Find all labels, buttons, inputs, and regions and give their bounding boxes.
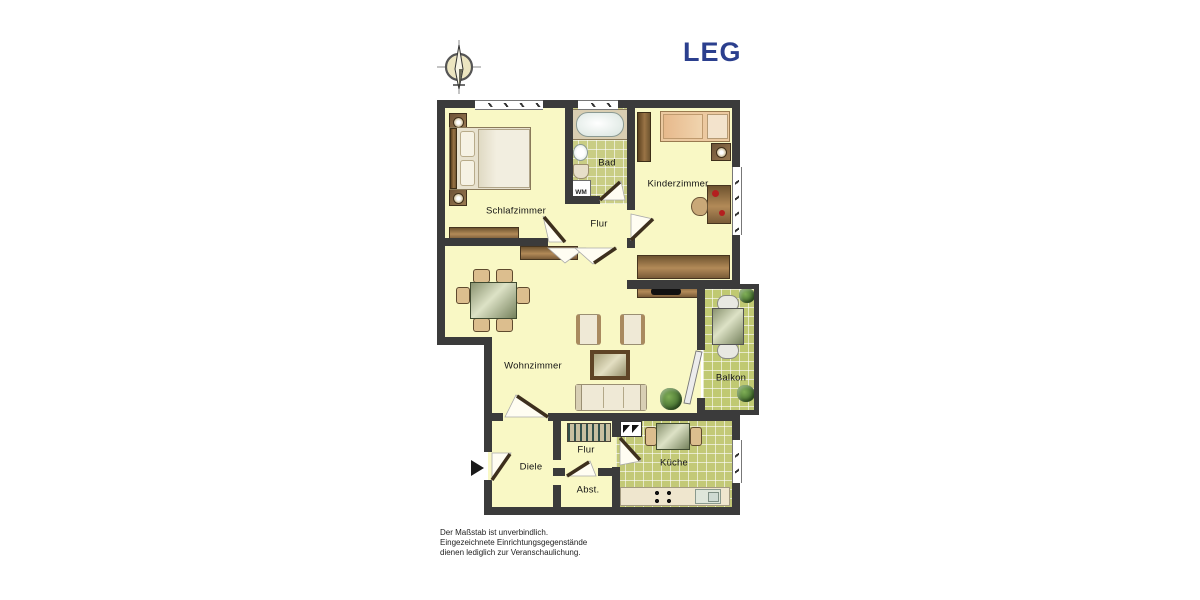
wall (553, 485, 561, 507)
duvet (478, 129, 530, 188)
bathroom-sink (573, 144, 588, 161)
bed-headboard (450, 128, 457, 189)
wall (437, 100, 445, 345)
wall (437, 238, 548, 246)
wall (565, 108, 573, 204)
lamp-icon (453, 193, 464, 204)
floorplan-page: LEG WM (0, 0, 1200, 600)
vent-symbol (620, 421, 642, 437)
dining-table (470, 282, 517, 319)
wall (612, 421, 620, 437)
room-label-bad: Bad (598, 158, 616, 169)
coffee-table (590, 350, 630, 380)
balcony-wall (754, 284, 759, 415)
wall (484, 507, 740, 515)
plant (660, 388, 682, 410)
dining-chair (473, 318, 490, 332)
wall (627, 108, 635, 210)
window (578, 100, 618, 110)
wall (553, 468, 565, 476)
plant (739, 288, 755, 303)
dining-chair (496, 269, 513, 283)
toilet (573, 164, 589, 179)
window (732, 440, 742, 483)
washing-machine-label: WM (575, 189, 587, 196)
footer-disclaimer: Der Maßstab ist unverbindlich. Eingezeic… (440, 528, 587, 558)
sofa-cushion-line (623, 387, 624, 408)
washing-machine: WM (571, 180, 591, 197)
pillow (707, 114, 728, 139)
wall (627, 238, 635, 248)
dining-chair (456, 287, 470, 304)
wall (484, 413, 503, 421)
blanket (663, 114, 703, 139)
dining-chair (516, 287, 530, 304)
dining-chair (473, 269, 490, 283)
room-label-wohnzimmer: Wohnzimmer (504, 361, 562, 372)
room-label-diele: Diele (520, 462, 543, 473)
room-label-flur-oben: Flur (590, 219, 607, 230)
sofa-cushion-line (603, 387, 604, 408)
wall (553, 421, 561, 460)
kitchen-counter (620, 487, 730, 506)
room-label-balkon: Balkon (716, 373, 746, 384)
compass-icon (437, 40, 481, 94)
hall-wardrobe (567, 423, 611, 442)
dining-chair (496, 318, 513, 332)
wardrobe (637, 112, 651, 162)
room-label-kinderzimmer: Kinderzimmer (648, 179, 709, 190)
bathtub (576, 112, 624, 137)
desk-item (712, 190, 719, 197)
balcony-wall (703, 410, 759, 415)
sink-basin (708, 492, 719, 502)
room-label-kueche: Küche (660, 458, 688, 469)
pillow (460, 160, 475, 186)
wall (627, 280, 740, 289)
sofa (575, 384, 647, 411)
wall (484, 337, 492, 452)
entrance-arrow-icon (471, 460, 484, 476)
wall (697, 289, 705, 350)
single-bed (660, 111, 730, 142)
stove (649, 489, 677, 504)
footer-line-1: Der Maßstab ist unverbindlich. (440, 528, 587, 538)
sideboard (637, 255, 730, 279)
kitchen-chair (690, 427, 702, 446)
balcony-wall (740, 284, 759, 289)
room-label-schlafzimmer: Schlafzimmer (486, 206, 546, 217)
nightstand (449, 189, 467, 206)
lamp-icon (716, 147, 727, 158)
pillow (460, 131, 475, 157)
wall (612, 467, 620, 507)
sideboard (520, 246, 578, 260)
armchair (576, 314, 601, 345)
kitchen-table (656, 423, 690, 450)
kitchen-sink (695, 489, 721, 504)
balcony-table (712, 308, 744, 345)
desk-chair (691, 197, 708, 216)
desk-item (719, 210, 725, 216)
double-bed (449, 127, 531, 190)
wall (565, 196, 600, 204)
desk (707, 185, 731, 224)
window (475, 100, 543, 110)
lamp-icon (453, 117, 464, 128)
window (732, 167, 742, 235)
room-label-flur-unten: Flur (577, 445, 594, 456)
plant (737, 385, 755, 402)
armchair (620, 314, 645, 345)
footer-line-2: Eingezeichnete Einrichtungsgegenstände (440, 538, 587, 548)
nightstand (711, 143, 731, 161)
footer-line-3: dienen lediglich zur Veranschaulichung. (440, 548, 587, 558)
sofa-arm (576, 385, 582, 410)
room-label-abstellraum: Abst. (577, 485, 600, 496)
leg-logo: LEG (683, 37, 742, 68)
tv (651, 288, 681, 295)
sofa-arm (640, 385, 646, 410)
